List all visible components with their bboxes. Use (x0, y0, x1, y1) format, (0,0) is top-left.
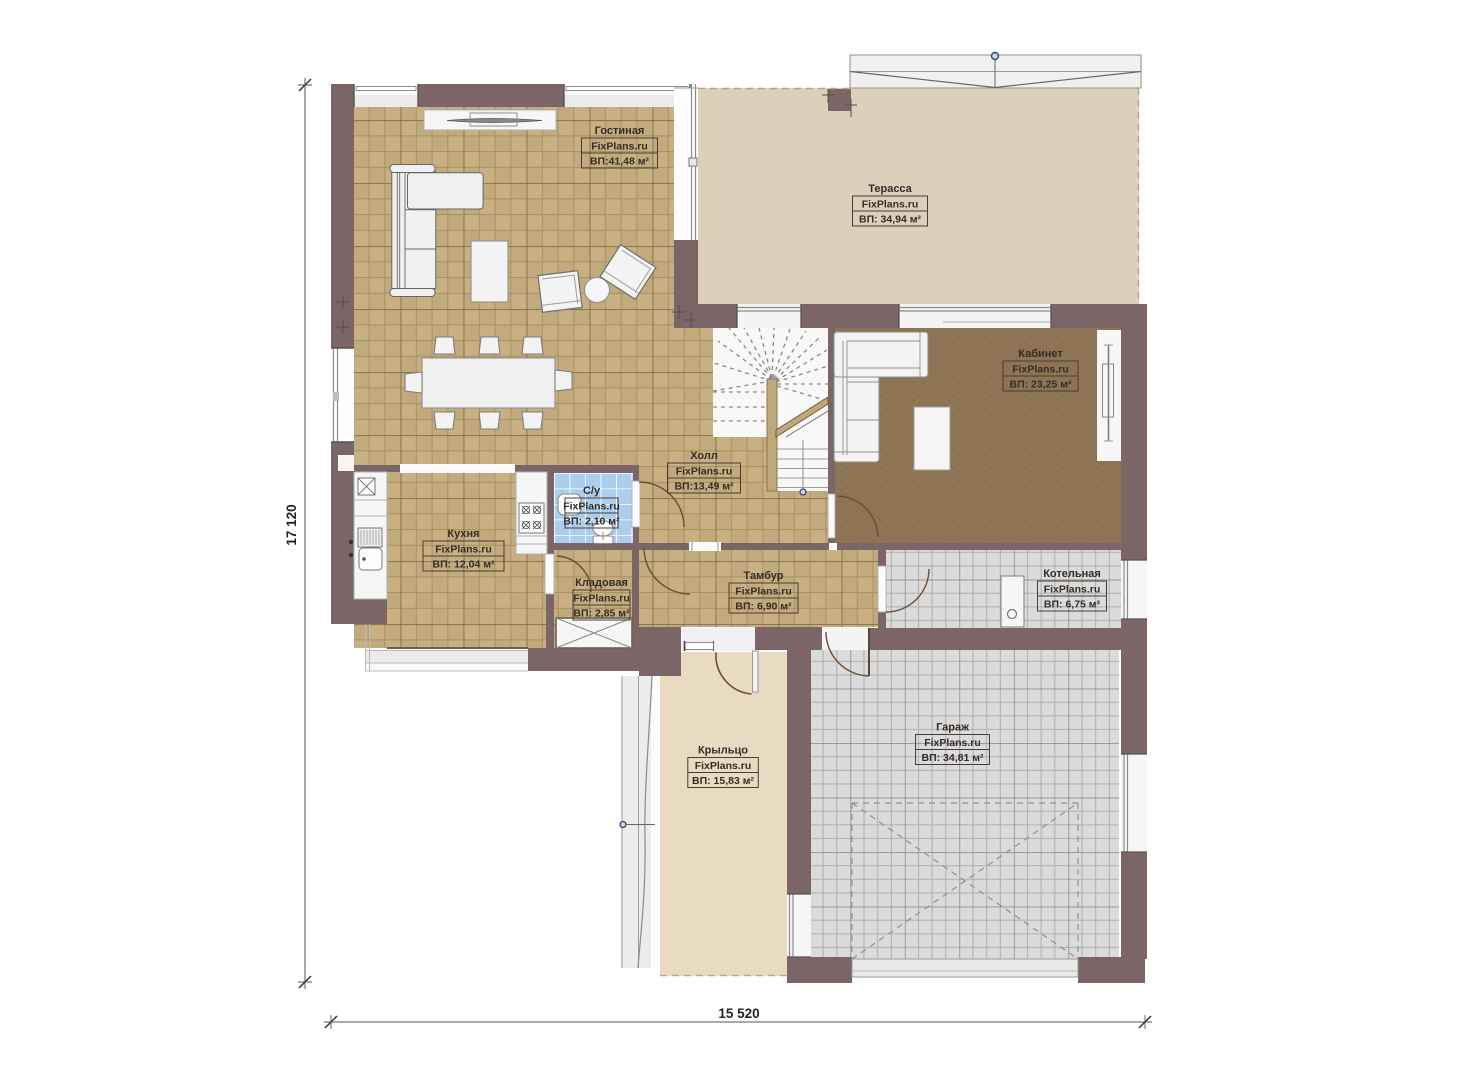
svg-text:ВП: 23,25 м²: ВП: 23,25 м² (1009, 379, 1072, 391)
svg-text:ВП: 2,85 м²: ВП: 2,85 м² (573, 608, 630, 620)
svg-text:Гостиная: Гостиная (595, 125, 645, 137)
svg-text:Кухня: Кухня (447, 528, 479, 540)
svg-text:ВП: 12,04 м²: ВП: 12,04 м² (432, 559, 495, 571)
svg-text:FixPlans.ru: FixPlans.ru (862, 199, 919, 211)
svg-text:ВП: 34,94 м²: ВП: 34,94 м² (859, 214, 922, 226)
svg-text:FixPlans.ru: FixPlans.ru (924, 737, 981, 749)
svg-text:FixPlans.ru: FixPlans.ru (435, 544, 492, 556)
svg-text:Кладовая: Кладовая (575, 577, 628, 589)
svg-text:ВП: 34,81 м²: ВП: 34,81 м² (921, 752, 984, 764)
svg-text:С/у: С/у (583, 485, 601, 497)
svg-text:FixPlans.ru: FixPlans.ru (1044, 584, 1101, 596)
svg-text:ВП:13,49 м²: ВП:13,49 м² (674, 481, 734, 493)
svg-text:ВП: 15,83 м²: ВП: 15,83 м² (692, 775, 755, 787)
svg-text:Гараж: Гараж (936, 722, 969, 734)
svg-text:Тамбур: Тамбур (744, 570, 784, 582)
svg-text:FixPlans.ru: FixPlans.ru (676, 466, 733, 478)
svg-text:15 520: 15 520 (718, 1006, 759, 1021)
svg-text:ВП: 2,10 м²: ВП: 2,10 м² (563, 516, 620, 528)
svg-text:FixPlans.ru: FixPlans.ru (1012, 364, 1069, 376)
svg-text:Крыльцо: Крыльцо (698, 745, 748, 757)
svg-text:FixPlans.ru: FixPlans.ru (573, 593, 630, 605)
svg-text:ВП: 6,75 м²: ВП: 6,75 м² (1044, 599, 1101, 611)
svg-text:ВП:41,48 м²: ВП:41,48 м² (590, 156, 650, 168)
svg-text:Котельная: Котельная (1043, 568, 1101, 580)
svg-text:Терасса: Терасса (868, 183, 912, 195)
svg-text:17 120: 17 120 (284, 504, 299, 545)
svg-text:ВП: 6,90 м²: ВП: 6,90 м² (735, 601, 792, 613)
svg-text:FixPlans.ru: FixPlans.ru (695, 760, 752, 772)
svg-text:FixPlans.ru: FixPlans.ru (735, 586, 792, 598)
svg-text:Кабинет: Кабинет (1018, 348, 1063, 360)
svg-text:FixPlans.ru: FixPlans.ru (563, 501, 620, 513)
svg-text:Холл: Холл (690, 450, 718, 462)
svg-text:FixPlans.ru: FixPlans.ru (591, 141, 648, 153)
